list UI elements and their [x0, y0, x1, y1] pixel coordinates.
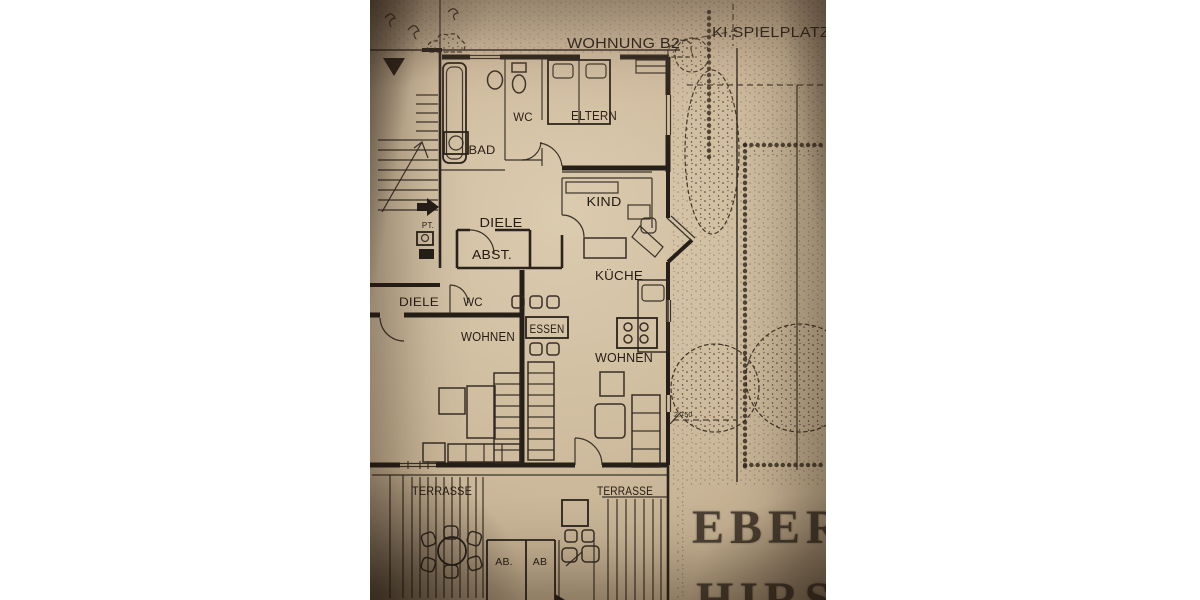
title-wohnung-b2: WOHNUNG B2	[567, 35, 680, 52]
label-terrasse-left: TERRASSE	[412, 486, 472, 498]
bedroom-furniture	[548, 60, 668, 258]
label-dimension: 2.750	[674, 412, 693, 419]
label-ab-left: AB.	[495, 556, 513, 568]
floorplan-photo: WOHNUNG B2 KI.SPIELPLATZ BAD WC ELTERN P…	[370, 0, 826, 600]
label-pt: PT.	[422, 221, 434, 230]
label-terrasse-right: TERRASSE	[597, 486, 653, 498]
stencil-text-line1: EBER	[692, 500, 826, 555]
label-spielplatz: KI.SPIELPLATZ	[712, 24, 826, 41]
label-diele-lower: DIELE	[399, 295, 439, 309]
page-background: WOHNUNG B2 KI.SPIELPLATZ BAD WC ELTERN P…	[0, 0, 1200, 600]
label-bad: BAD	[469, 143, 496, 157]
label-wohnen-left: WOHNEN	[461, 330, 515, 344]
stencil-text-line2: HIRSC	[696, 572, 826, 600]
label-kind: KIND	[587, 195, 622, 209]
label-wc-upper: WC	[513, 112, 533, 124]
entry-arrow-icon	[383, 58, 405, 76]
label-kueche: KÜCHE	[595, 269, 643, 283]
label-wc-lower: WC	[463, 297, 483, 309]
label-abst: ABST.	[472, 248, 512, 262]
label-eltern: ELTERN	[571, 108, 617, 123]
label-diele-upper: DIELE	[480, 216, 523, 230]
living-furniture	[423, 362, 660, 467]
label-essen: ESSEN	[530, 322, 565, 336]
label-wohnen-right: WOHNEN	[595, 350, 653, 365]
pt-arrow-icon	[417, 198, 439, 216]
label-ab-right: AB	[533, 556, 547, 568]
